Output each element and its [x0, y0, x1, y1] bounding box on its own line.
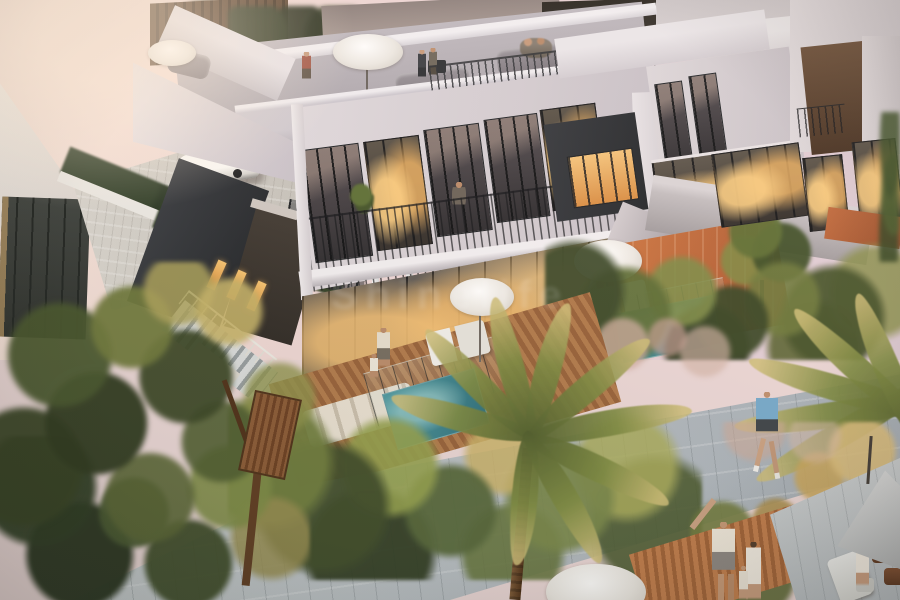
outdoor-chair: [884, 568, 900, 585]
rooftop-person: [418, 50, 426, 80]
man-leg: [718, 574, 724, 600]
walking-man: [712, 522, 735, 576]
child-on-deck: [370, 354, 378, 378]
villa2-lit-window: [567, 148, 640, 209]
man-leg: [728, 574, 734, 600]
rooftop-white-umbrella: [333, 34, 403, 70]
jogger-in-blue-shirt: [756, 392, 778, 444]
palm-fronds-top-right: [868, 112, 900, 262]
adult-on-deck: [377, 328, 390, 368]
walking-woman: [746, 542, 761, 600]
car-wheel: [233, 169, 242, 178]
villa-render-scene: Shinelife: [0, 0, 900, 600]
umbrella-pole: [479, 312, 481, 362]
right-villa-balcony-railing: [797, 104, 848, 138]
rooftop-person: [302, 52, 311, 82]
watermark: Shinelife: [331, 274, 570, 319]
rooftop-umbrella-partial: [148, 40, 196, 66]
walking-child: [739, 566, 748, 600]
